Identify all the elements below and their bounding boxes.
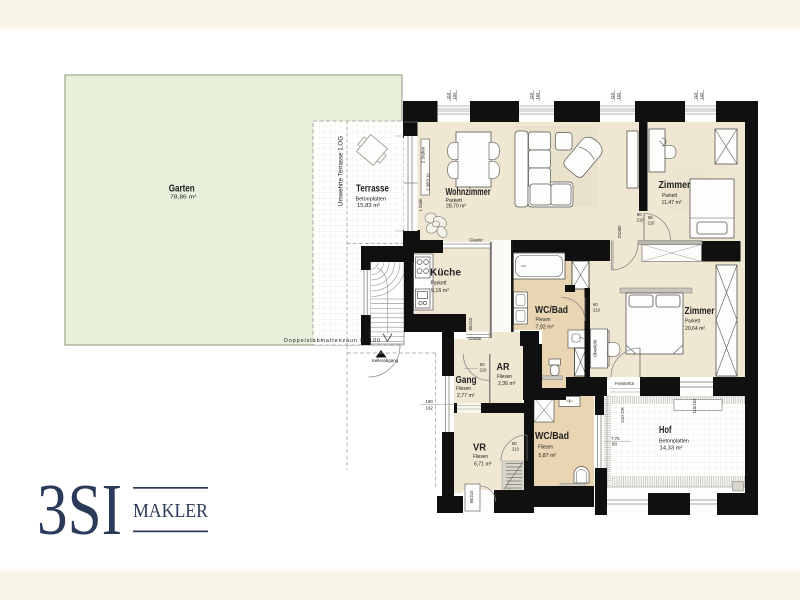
svg-text:Küche: Küche bbox=[430, 268, 461, 279]
svg-text:210: 210 bbox=[637, 218, 645, 223]
svg-text:3SI: 3SI bbox=[37, 469, 122, 550]
svg-text:6,71 m²: 6,71 m² bbox=[474, 462, 492, 468]
svg-text:162: 162 bbox=[452, 92, 457, 100]
svg-text:Oberlicht: Oberlicht bbox=[593, 339, 598, 357]
svg-text:80: 80 bbox=[512, 441, 517, 446]
svg-text:Fliesen: Fliesen bbox=[473, 454, 488, 460]
svg-text:80: 80 bbox=[612, 442, 617, 447]
svg-text:110: 110 bbox=[446, 92, 451, 99]
svg-text:Zimmer: Zimmer bbox=[685, 306, 715, 317]
svg-text:1 Stufe: 1 Stufe bbox=[418, 198, 423, 212]
svg-text:Glastür: Glastür bbox=[468, 336, 482, 341]
svg-text:7,75: 7,75 bbox=[611, 436, 620, 441]
svg-text:Betonplatten: Betonplatten bbox=[659, 439, 689, 445]
svg-text:Wohnzimmer: Wohnzimmer bbox=[446, 187, 491, 198]
svg-text:110: 110 bbox=[610, 92, 615, 99]
svg-text:190: 190 bbox=[426, 399, 434, 404]
svg-text:2,36 m²: 2,36 m² bbox=[498, 381, 516, 387]
svg-text:Kellerabgang: Kellerabgang bbox=[372, 358, 399, 363]
svg-text:AR: AR bbox=[497, 362, 511, 373]
svg-text:Betonplatten: Betonplatten bbox=[356, 196, 387, 202]
svg-text:28,70 m²: 28,70 m² bbox=[446, 204, 466, 210]
svg-text:86: 86 bbox=[648, 215, 653, 220]
svg-text:5,87 m²: 5,87 m² bbox=[539, 453, 557, 459]
svg-text:110: 110 bbox=[529, 92, 534, 99]
svg-text:Fenstertür: Fenstertür bbox=[615, 381, 635, 386]
svg-text:210: 210 bbox=[480, 368, 488, 373]
svg-text:Gang: Gang bbox=[456, 375, 477, 386]
svg-text:2,77 m²: 2,77 m² bbox=[457, 393, 475, 399]
svg-text:60: 60 bbox=[593, 302, 598, 307]
svg-text:9,16 m²: 9,16 m² bbox=[431, 288, 449, 294]
svg-text:162: 162 bbox=[426, 406, 434, 411]
svg-text:15,83 m²: 15,83 m² bbox=[357, 203, 380, 209]
svg-text:Garten: Garten bbox=[169, 183, 195, 194]
svg-text:210: 210 bbox=[648, 221, 656, 226]
svg-text:110: 110 bbox=[693, 92, 698, 99]
svg-text:162: 162 bbox=[616, 92, 621, 100]
svg-text:Fliesen: Fliesen bbox=[497, 374, 512, 380]
svg-text:2.38/3.10: 2.38/3.10 bbox=[426, 173, 431, 191]
svg-text:90/210: 90/210 bbox=[469, 490, 474, 503]
svg-text:Umwehrte Terrasse 1.OG: Umwehrte Terrasse 1.OG bbox=[338, 136, 345, 206]
svg-text:Doppelstabmattenzaun H=100: Doppelstabmattenzaun H=100 bbox=[284, 338, 380, 344]
svg-text:VR: VR bbox=[473, 443, 487, 454]
svg-text:Fliesen: Fliesen bbox=[538, 445, 553, 451]
svg-text:Hof: Hof bbox=[659, 425, 672, 436]
svg-text:7,92 m²: 7,92 m² bbox=[536, 324, 554, 330]
svg-text:162: 162 bbox=[699, 92, 704, 100]
svg-text:210: 210 bbox=[593, 308, 601, 313]
svg-text:Zimmer: Zimmer bbox=[659, 180, 691, 191]
svg-text:210 OK: 210 OK bbox=[620, 406, 625, 423]
svg-text:210: 210 bbox=[512, 447, 520, 452]
svg-text:MAKLER: MAKLER bbox=[133, 500, 208, 522]
svg-text:Fliesen: Fliesen bbox=[456, 386, 471, 392]
svg-text:Fliesen: Fliesen bbox=[536, 317, 551, 323]
svg-text:80: 80 bbox=[480, 362, 485, 367]
svg-text:WC/Bad: WC/Bad bbox=[535, 305, 568, 316]
svg-text:11,47 m²: 11,47 m² bbox=[662, 200, 682, 206]
svg-text:Glastür: Glastür bbox=[469, 238, 483, 243]
svg-text:210/80: 210/80 bbox=[617, 225, 622, 238]
svg-text:115/162: 115/162 bbox=[692, 398, 697, 413]
svg-text:Parkett: Parkett bbox=[662, 193, 677, 199]
svg-text:Parkett: Parkett bbox=[685, 318, 700, 324]
svg-text:162: 162 bbox=[535, 92, 540, 100]
svg-text:20,64 m²: 20,64 m² bbox=[685, 326, 705, 332]
svg-text:Terrasse: Terrasse bbox=[356, 184, 389, 195]
svg-text:80/210: 80/210 bbox=[468, 317, 473, 330]
svg-text:78,86 m²: 78,86 m² bbox=[170, 195, 197, 201]
svg-text:WC/Bad: WC/Bad bbox=[535, 431, 569, 442]
svg-text:14,33 m²: 14,33 m² bbox=[660, 446, 683, 452]
svg-text:2 Stufen: 2 Stufen bbox=[421, 146, 426, 163]
svg-text:Parkett: Parkett bbox=[431, 281, 447, 287]
svg-text:80: 80 bbox=[637, 212, 642, 217]
